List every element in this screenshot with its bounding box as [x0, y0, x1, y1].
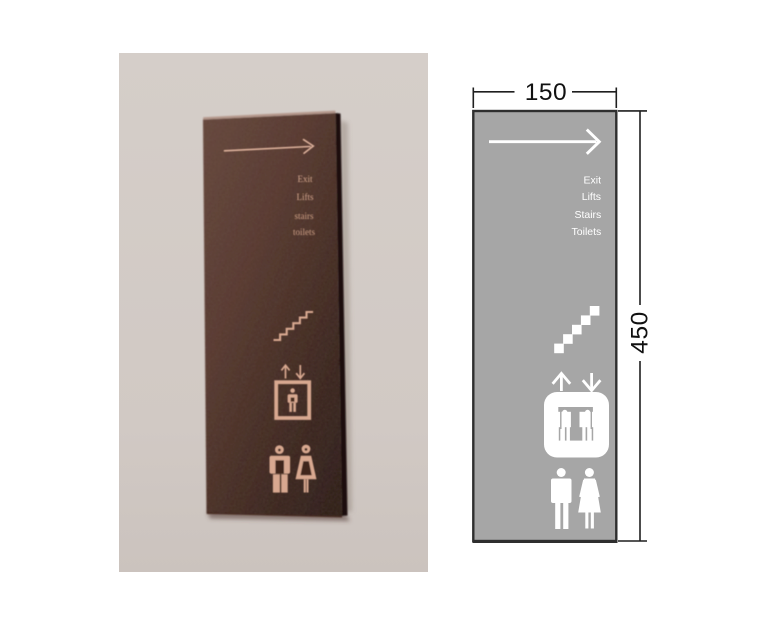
svg-text:Exit: Exit: [298, 174, 313, 184]
svg-text:Exit: Exit: [583, 175, 601, 187]
svg-text:Stairs: Stairs: [574, 209, 601, 221]
svg-text:Lifts: Lifts: [297, 192, 314, 202]
svg-text:Lifts: Lifts: [582, 191, 601, 203]
svg-text:stairs: stairs: [295, 211, 314, 221]
svg-text:150: 150: [525, 79, 567, 106]
svg-text:toilets: toilets: [293, 227, 315, 237]
svg-text:450: 450: [627, 311, 654, 353]
svg-text:Toilets: Toilets: [572, 226, 602, 238]
